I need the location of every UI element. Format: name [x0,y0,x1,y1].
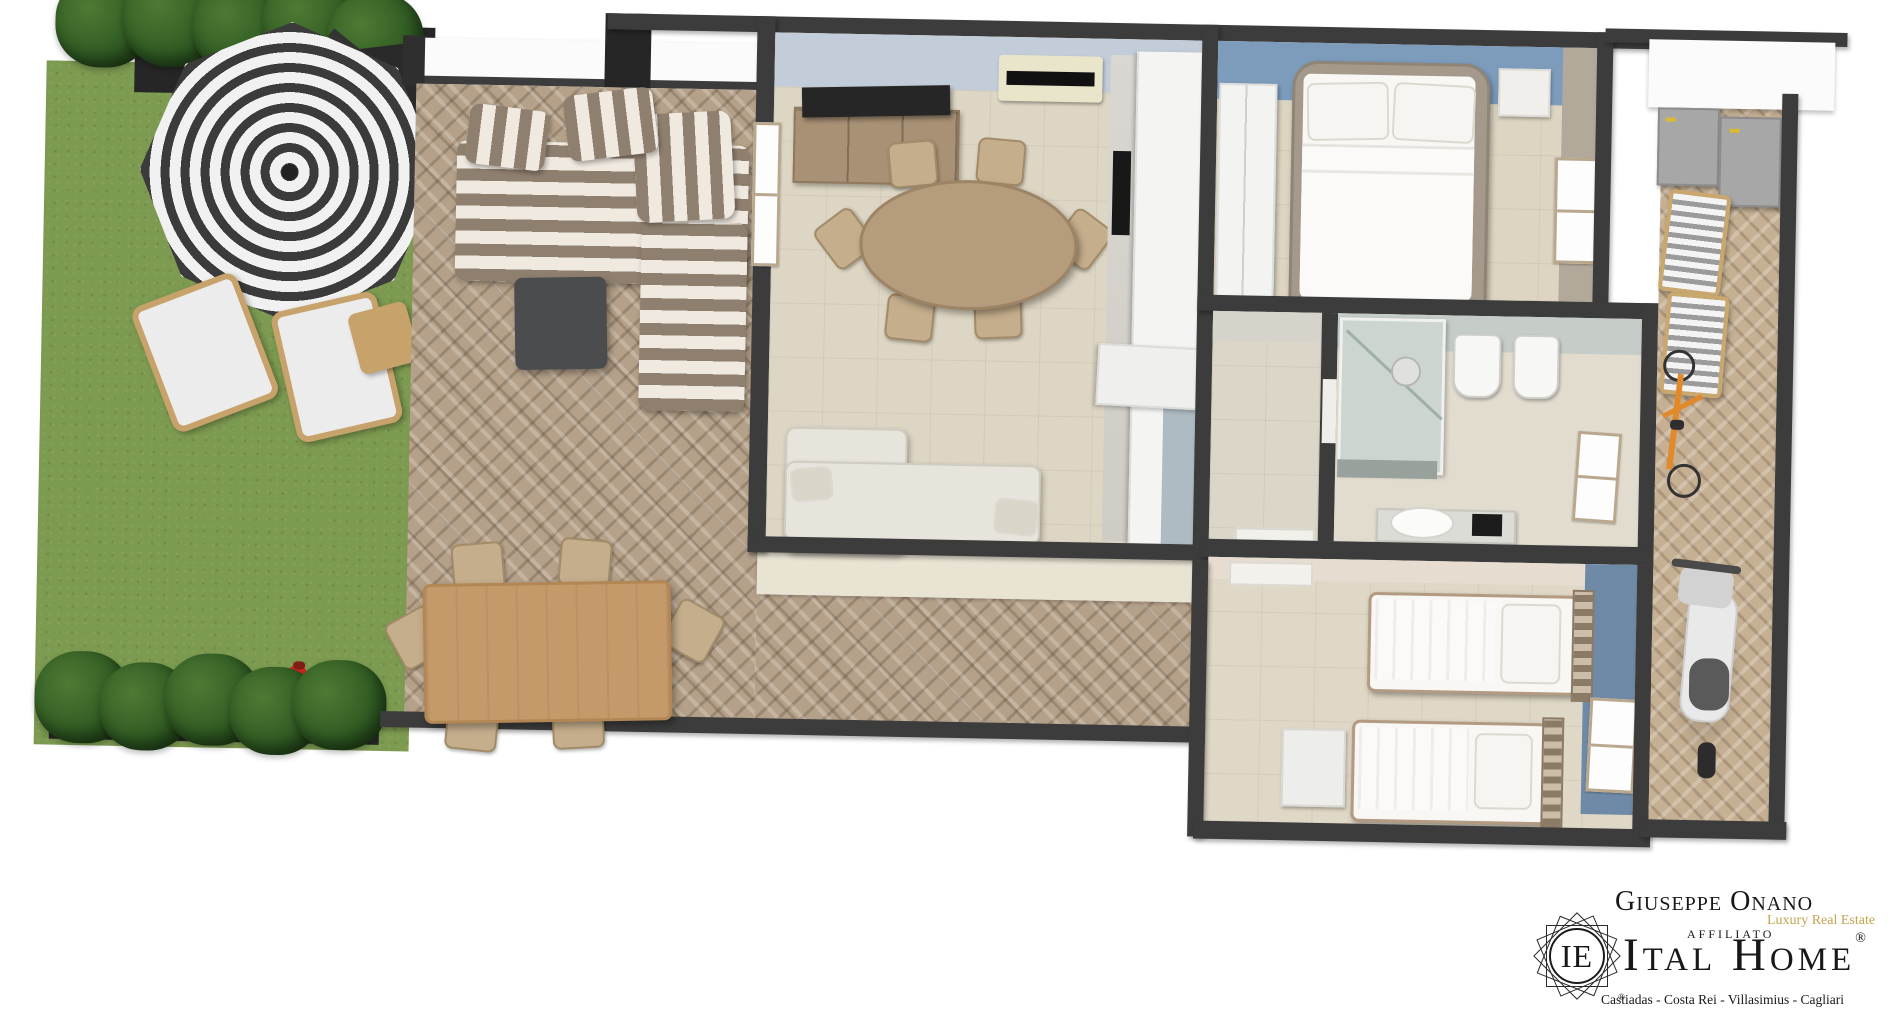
bedroom2-cabinet [1281,728,1346,807]
cabinet-label [1666,117,1676,121]
hallway-wall-face [1213,311,1323,343]
air-conditioner [998,55,1103,103]
patio-terrace-south [754,594,1208,731]
storage-cabinet [1657,107,1720,186]
bedroom2-window [1585,697,1638,793]
bicycle-seat [1670,420,1684,430]
sofa-pillow [789,465,834,502]
television [802,85,950,117]
kitchen-base-unit [1095,343,1202,411]
outdoor-dining-table [422,580,672,724]
bed-pillow [1307,82,1390,141]
shower-half-wall [1337,459,1437,479]
bedroom2-door-frame [1229,561,1313,587]
bidet [1453,333,1502,398]
outdoor-sofa-cushion [562,86,659,162]
gate-post [402,35,425,85]
emblem-monogram: IE [1549,928,1605,984]
bed-duvet [1299,144,1474,302]
deck-chair [1657,189,1731,298]
kitchen-oven [1112,151,1132,235]
brand-name-text: Ital Home [1623,929,1855,981]
cabinet-label [1730,129,1740,133]
registered-mark: ® [1855,931,1866,946]
outdoor-sofa-cushion [464,103,551,172]
single-bed [1367,592,1579,696]
roof-overhang [1648,39,1835,111]
hedge-plant [292,659,388,751]
agency-logo: Giuseppe Onano Luxury Real Estate AFFILI… [1505,880,1903,1012]
bed-pillow [1474,733,1533,810]
bicycle-frame [1662,394,1704,418]
brand-name: Ital Home® [1623,928,1866,982]
bathroom-window [1572,431,1622,524]
outdoor-sofa-section [638,222,748,412]
house-south-face [757,552,1210,603]
toilet [1513,335,1560,400]
double-bed [1288,60,1491,310]
scooter-rear-wheel [1697,742,1716,778]
floor-plan-render: Giuseppe Onano Luxury Real Estate AFFILI… [0,0,1903,1012]
living-window [751,122,782,267]
scooter [1657,561,1751,783]
bed-duvet [1374,599,1496,681]
tricycle-wheel [293,661,305,669]
bed-pillow [1500,603,1562,684]
air-conditioner-vent [1006,71,1094,87]
dining-chair [975,137,1027,187]
shower [1337,317,1446,475]
hallway-floor [1209,311,1322,541]
bed-headboard [1540,717,1564,827]
bed-headboard [1571,590,1595,702]
service-areas: Castiadas - Costa Rei - Villasimius - Ca… [1601,992,1844,1008]
bathroom-door [1322,379,1337,443]
bed-duvet [1358,727,1470,811]
nightstand [1498,68,1551,117]
bicycle [1646,343,1729,515]
bath-mat [1472,514,1502,537]
outdoor-coffee-table [514,277,607,370]
floor-plan [0,0,1903,1012]
brand-emblem: IE ® [1533,912,1621,1000]
storage-cabinet [1718,117,1782,208]
sofa-pillow [992,497,1040,537]
wall-side-terrace-south [1640,819,1786,840]
dining-chair [887,139,939,189]
single-bed [1350,720,1548,826]
kitchen-fridge-front [1161,392,1196,545]
scooter-seat [1689,658,1730,711]
agency-tagline: Luxury Real Estate [1767,913,1875,929]
bed-pillow [1391,82,1476,144]
